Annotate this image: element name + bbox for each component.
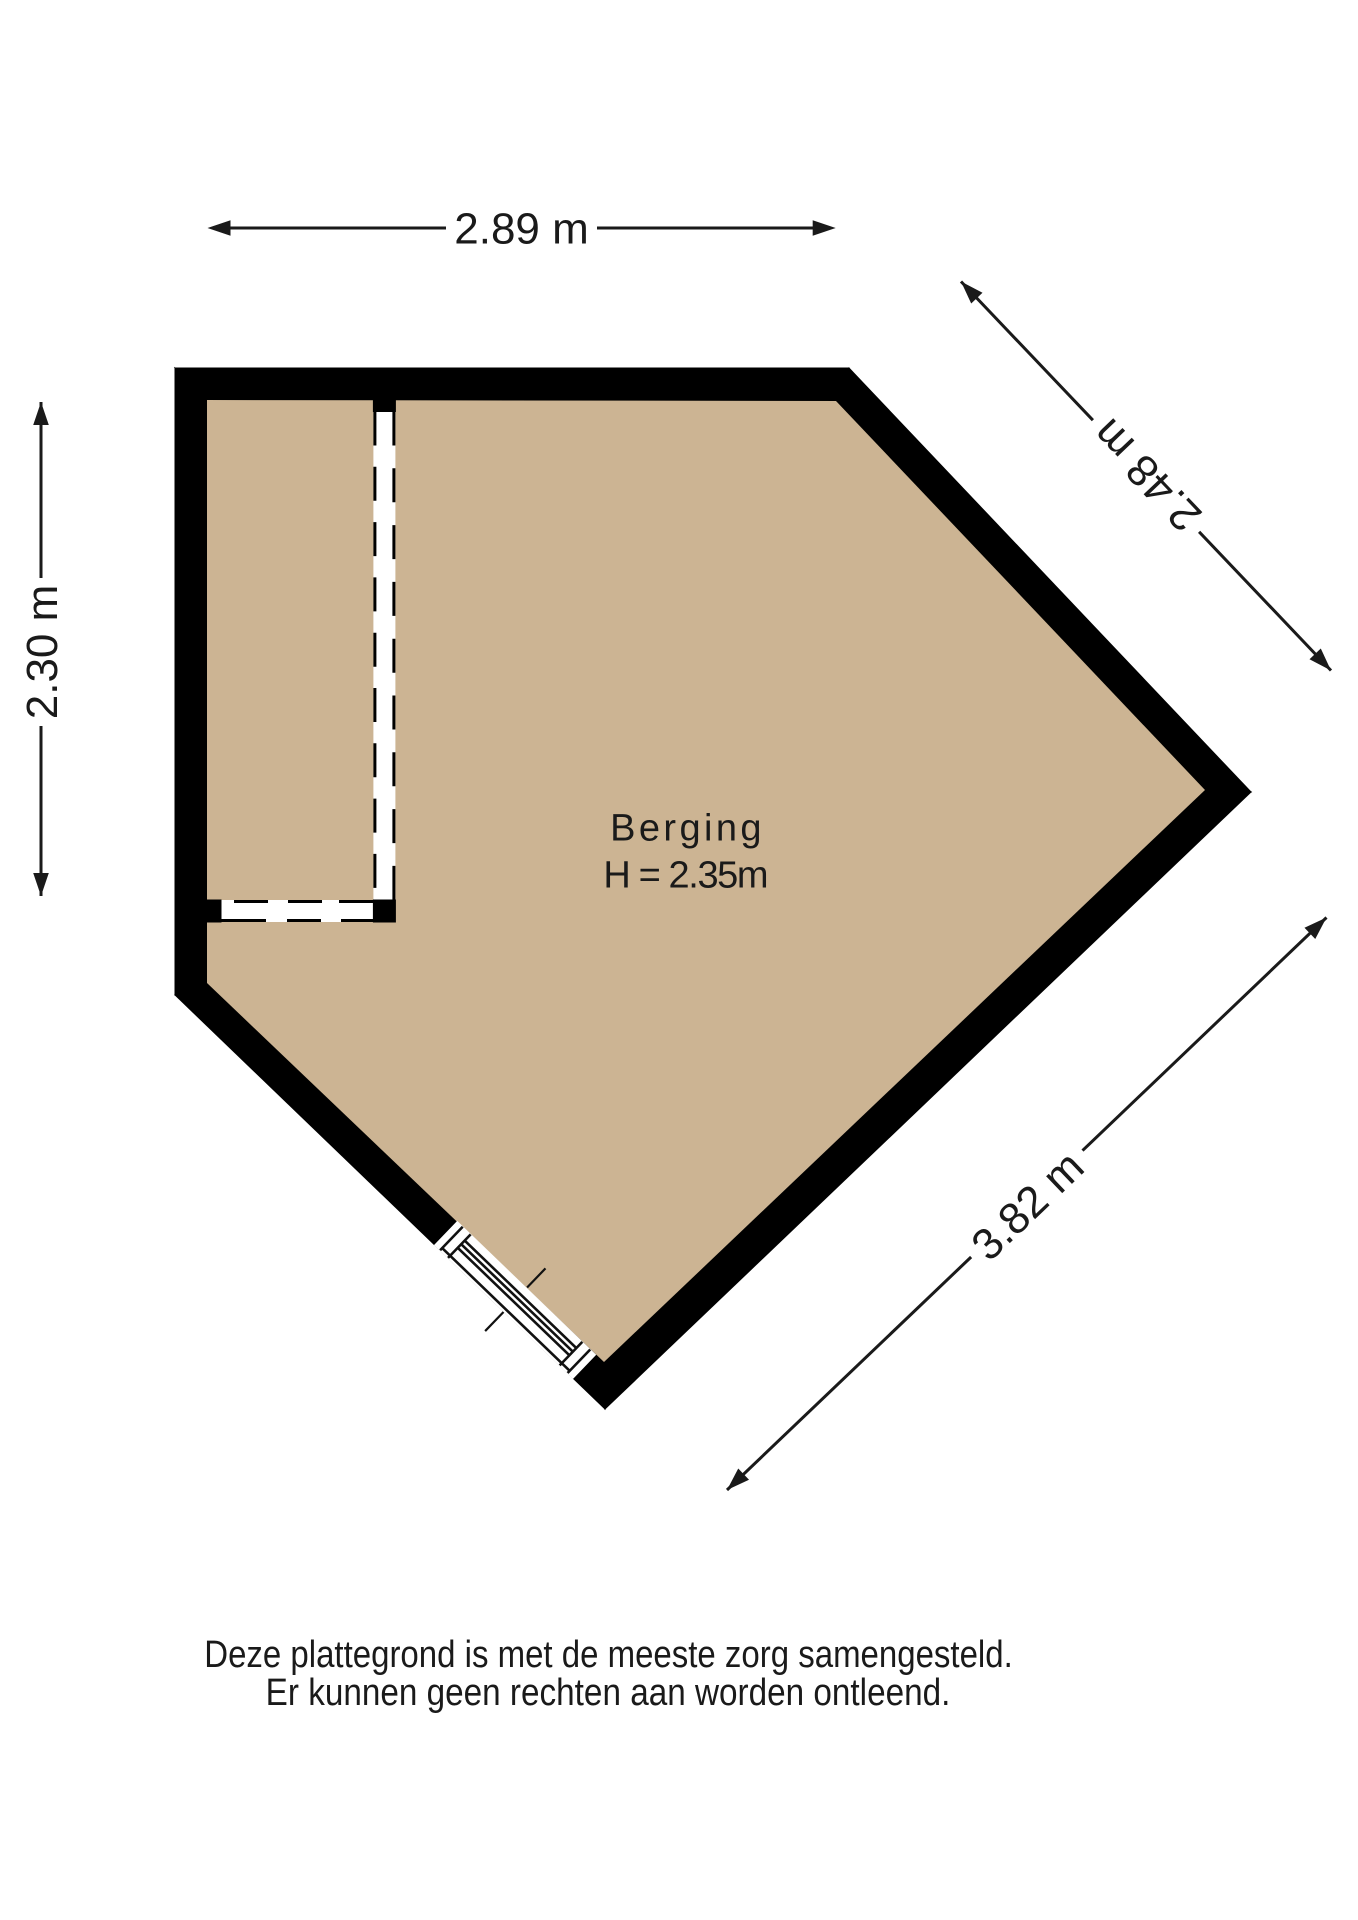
svg-text:2.89 m: 2.89 m bbox=[454, 205, 589, 254]
svg-text:2.30 m: 2.30 m bbox=[18, 585, 67, 720]
svg-text:Berging: Berging bbox=[610, 808, 765, 850]
svg-text:H = 2.35m: H = 2.35m bbox=[603, 855, 767, 897]
svg-text:Er kunnen geen rechten aan wor: Er kunnen geen rechten aan worden ontlee… bbox=[266, 1671, 951, 1714]
svg-text:Deze plattegrond is met de mee: Deze plattegrond is met de meeste zorg s… bbox=[204, 1633, 1012, 1676]
